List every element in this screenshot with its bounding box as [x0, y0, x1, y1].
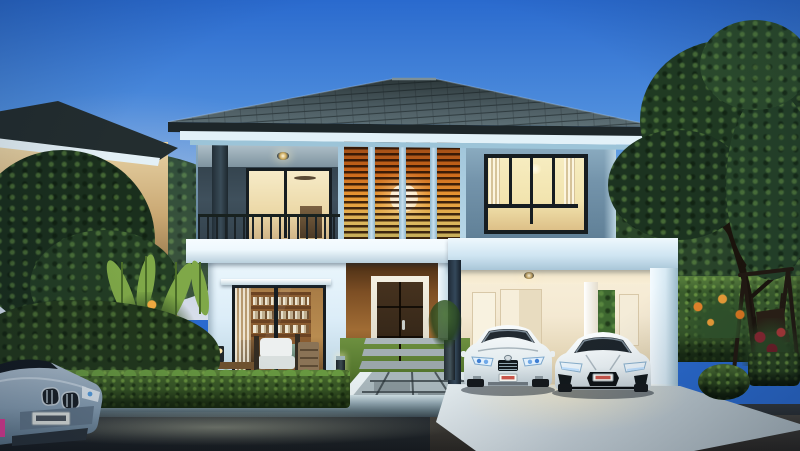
- round-shrub: [698, 364, 750, 400]
- street-parked-car: [0, 348, 112, 451]
- carport-beam: [448, 238, 678, 270]
- rendering-canvas: [0, 0, 800, 451]
- right-low-hedge: [748, 352, 800, 386]
- white-sports-car: [550, 324, 656, 400]
- edge-artifact: [0, 419, 5, 437]
- floor-slab-band: [186, 239, 486, 263]
- carport-ceiling: [460, 268, 650, 284]
- right-tree-canopy-top: [700, 20, 800, 110]
- carport-downlight: [524, 272, 534, 279]
- white-sedan: [458, 316, 558, 398]
- upper-window-mullion-bottom: [530, 206, 533, 224]
- entry-palm-plant: [428, 300, 462, 348]
- study-window-awning: [221, 279, 331, 285]
- front-door-groove-1: [377, 306, 423, 308]
